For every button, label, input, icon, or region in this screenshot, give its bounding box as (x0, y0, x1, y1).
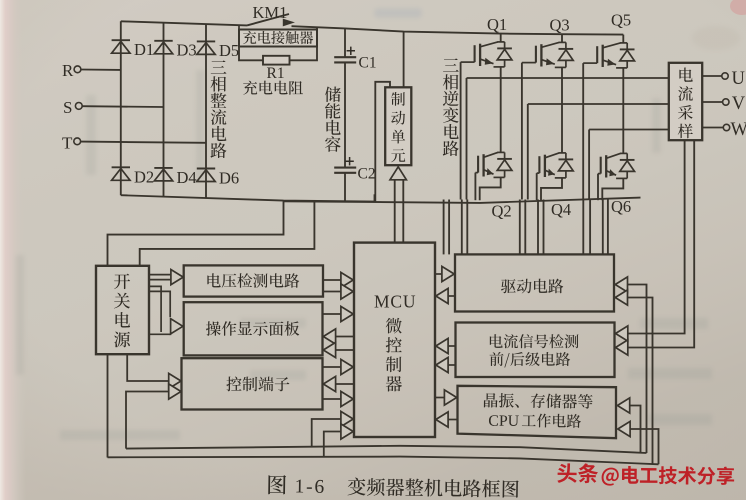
svg-text:1-6: 1-6 (294, 476, 326, 497)
svg-text:U: U (732, 69, 745, 89)
svg-text:KM1: KM1 (253, 3, 288, 22)
svg-text:V: V (732, 94, 746, 114)
svg-text:D4: D4 (177, 168, 197, 187)
svg-text:S: S (63, 98, 72, 117)
svg-text:R1: R1 (267, 65, 285, 82)
svg-text:D6: D6 (219, 169, 239, 188)
svg-text:Q5: Q5 (611, 11, 631, 30)
svg-text:D2: D2 (134, 168, 154, 187)
svg-text:C1: C1 (359, 55, 377, 72)
svg-text:CPU: CPU (488, 413, 520, 430)
svg-text:Q1: Q1 (487, 15, 507, 34)
svg-text:Q4: Q4 (551, 200, 571, 219)
svg-text:D1: D1 (134, 40, 154, 59)
svg-text:Q6: Q6 (611, 197, 631, 216)
svg-text:C2: C2 (358, 166, 376, 183)
svg-text:D3: D3 (177, 41, 197, 60)
svg-text:T: T (62, 134, 73, 153)
svg-text:R: R (62, 61, 74, 80)
svg-text:MCU: MCU (374, 292, 416, 312)
svg-text:D5: D5 (219, 41, 239, 60)
svg-text:W: W (731, 120, 746, 140)
svg-text:Q2: Q2 (492, 202, 512, 221)
svg-text:Q3: Q3 (550, 16, 570, 35)
